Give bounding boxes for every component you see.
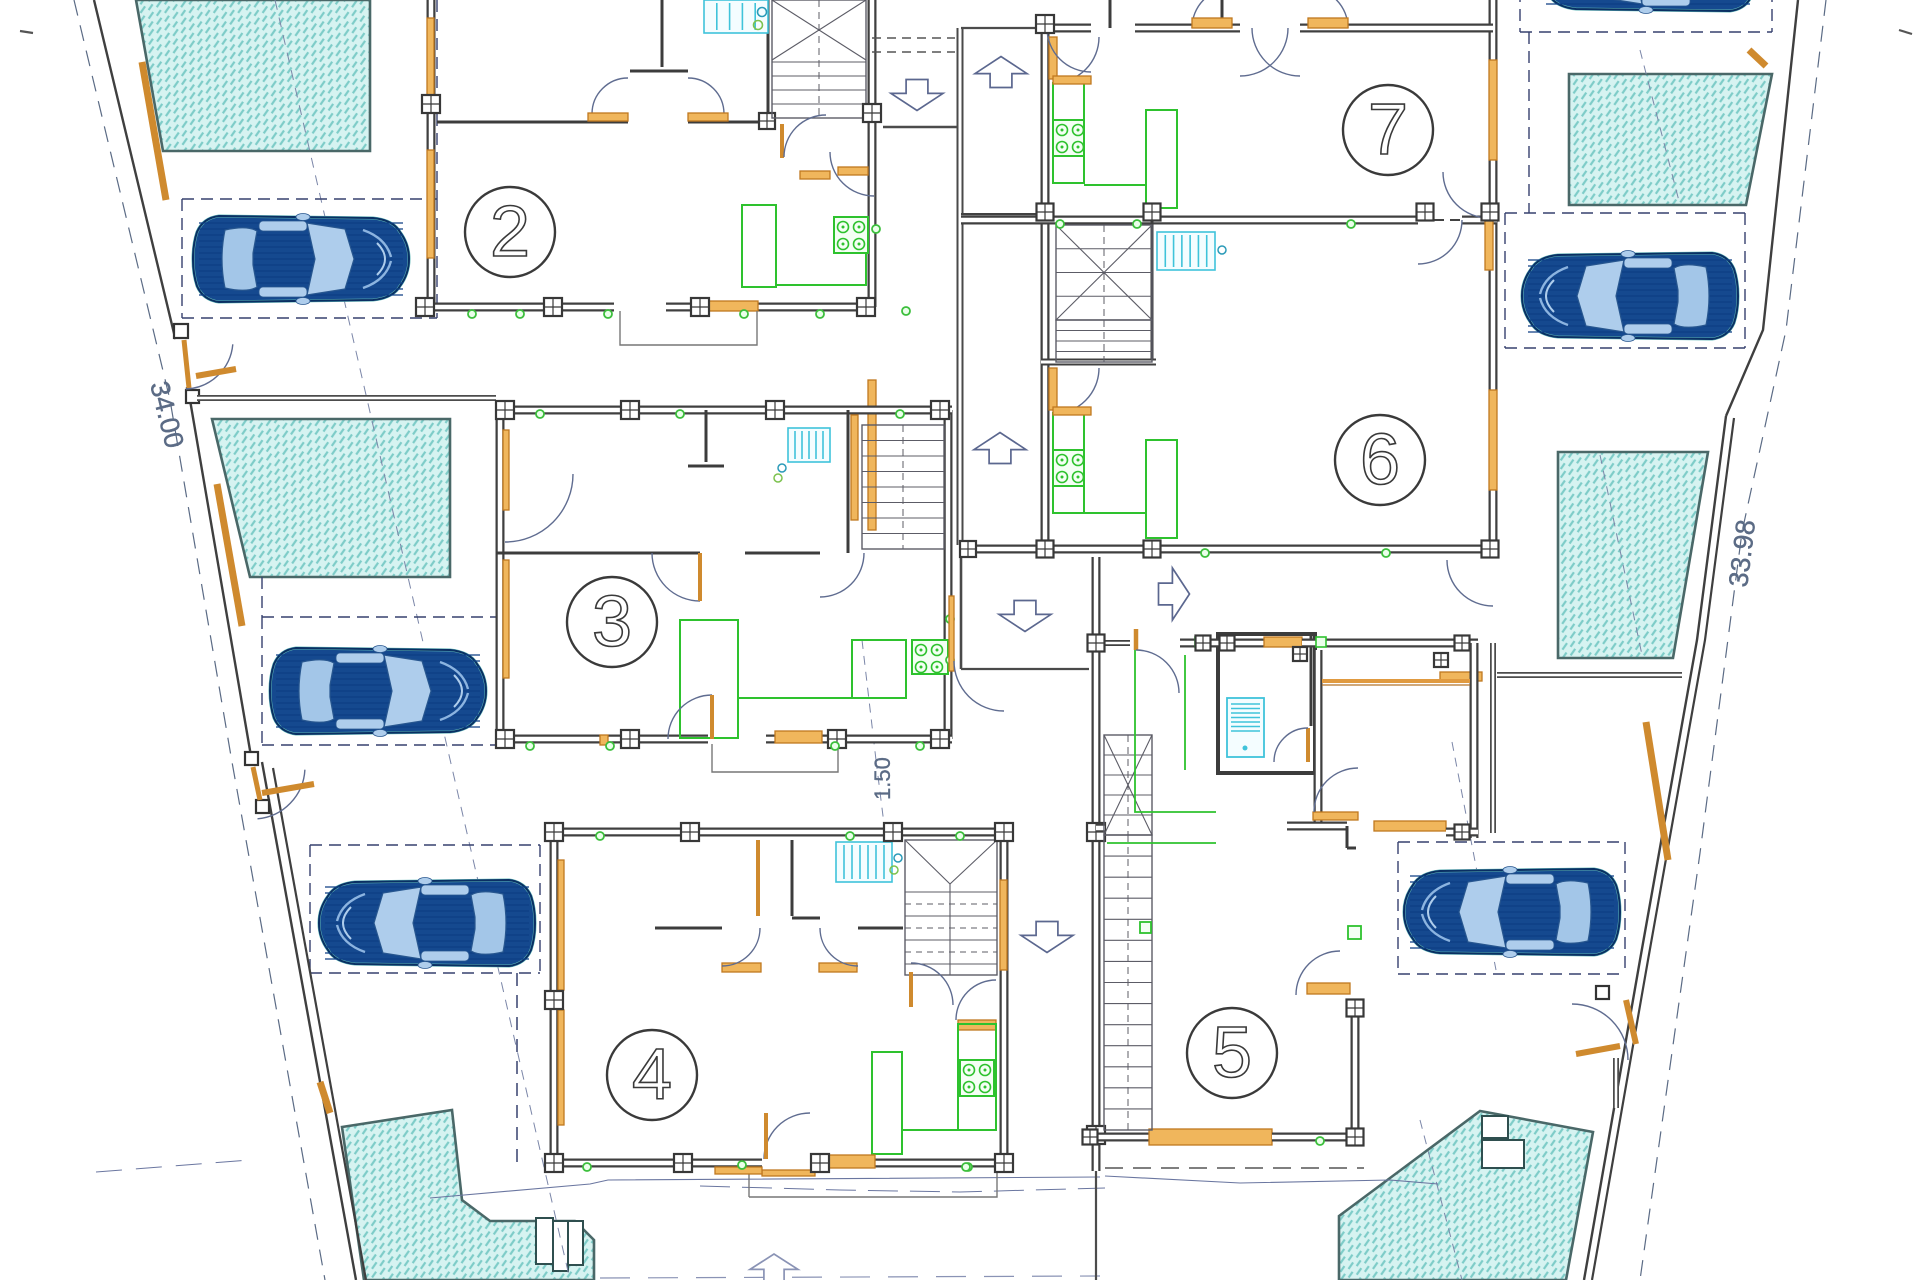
svg-text:6: 6 [1360, 420, 1400, 500]
svg-text:7: 7 [1368, 90, 1408, 170]
svg-text:5: 5 [1212, 1013, 1252, 1093]
svg-text:2: 2 [490, 192, 530, 272]
svg-text:4: 4 [632, 1035, 672, 1115]
svg-text:3: 3 [592, 582, 632, 662]
svg-text:1.50: 1.50 [870, 757, 895, 800]
